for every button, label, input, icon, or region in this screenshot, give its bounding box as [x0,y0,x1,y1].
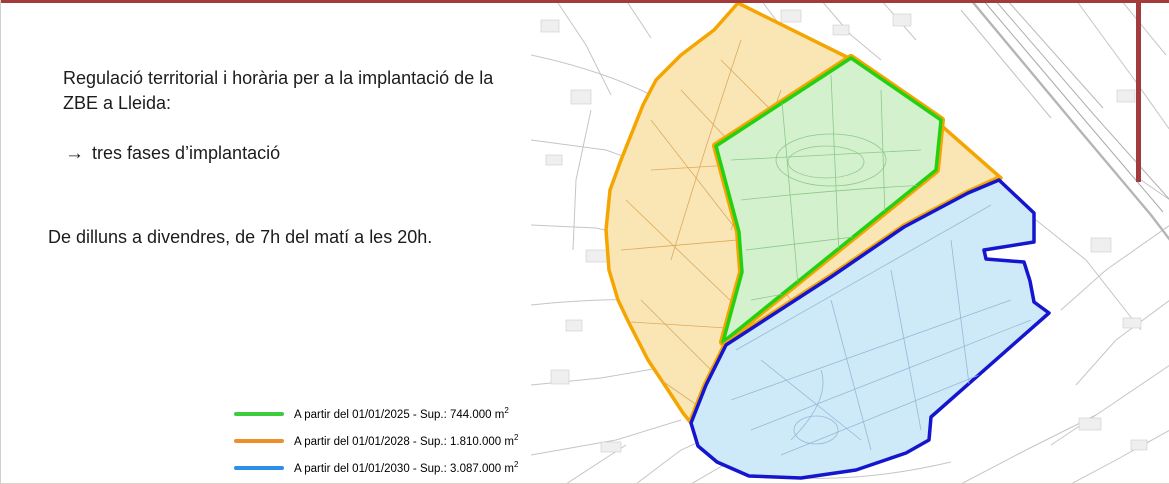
legend-line-orange [234,439,284,443]
map-legend: A partir del 01/01/2025 - Sup.: 744.000 … [234,400,534,481]
legend-item-2030: A partir del 01/01/2030 - Sup.: 3.087.00… [234,454,534,481]
text-panel: Regulació territorial i horària per a la… [1,0,531,484]
slide-title: Regulació territorial i horària per a la… [63,66,533,116]
legend-label-2025: A partir del 01/01/2025 - Sup.: 744.000 … [294,406,509,421]
legend-line-green [234,412,284,416]
legend-label-2030: A partir del 01/01/2030 - Sup.: 3.087.00… [294,460,518,475]
legend-line-blue [234,466,284,470]
city-map [531,0,1169,484]
page-edge-stripe [1136,0,1141,182]
schedule-text: De dilluns a divendres, de 7h del matí a… [48,227,518,248]
slide: Regulació territorial i horària per a la… [0,0,1169,484]
slide-top-border [1,0,1169,3]
legend-label-2028: A partir del 01/01/2028 - Sup.: 1.810.00… [294,433,518,448]
legend-item-2025: A partir del 01/01/2025 - Sup.: 744.000 … [234,400,534,427]
phases-bullet: →tres fases d’implantació [65,143,505,165]
arrow-icon: → [65,143,84,164]
legend-item-2028: A partir del 01/01/2028 - Sup.: 1.810.00… [234,427,534,454]
phases-bullet-label: tres fases d’implantació [92,143,280,163]
